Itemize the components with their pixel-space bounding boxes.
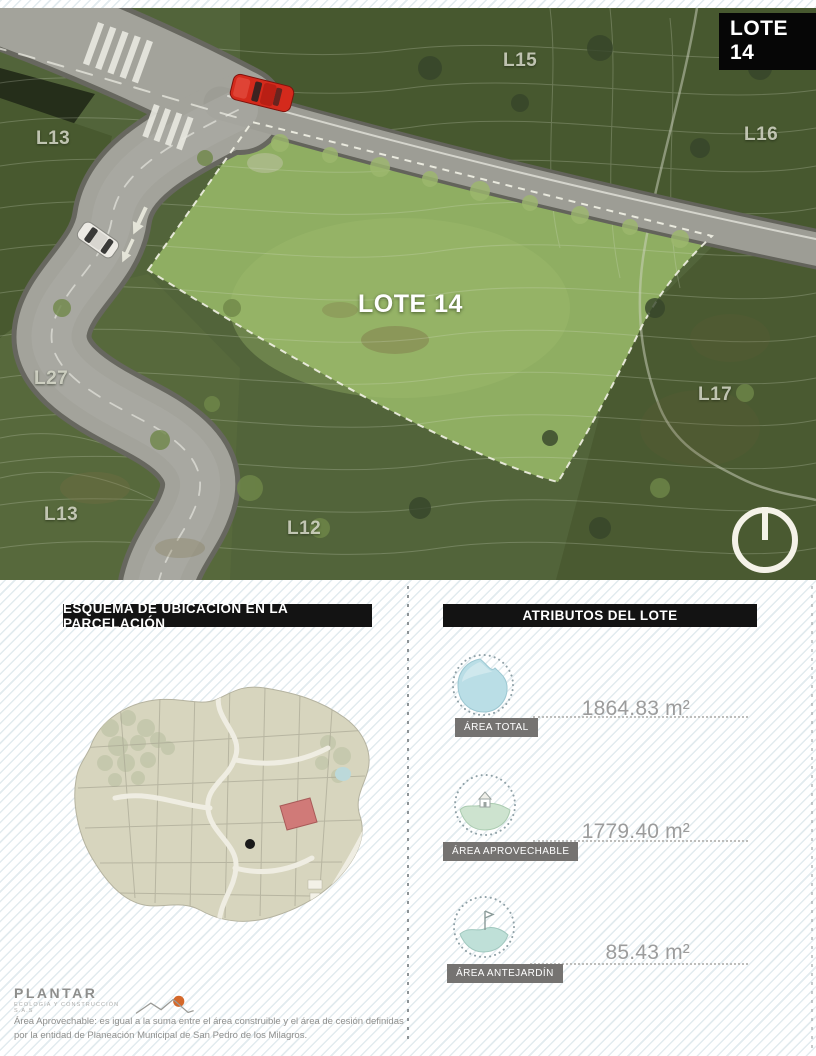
dotted-page-edge: [811, 586, 813, 1048]
area-antejardin-value: 85.43 m²: [560, 941, 690, 965]
map-label-l12: L12: [287, 518, 321, 540]
parcelacion-mini-map-graphic: [60, 648, 390, 948]
area-aprovechable-icon: [452, 772, 518, 838]
dotted-divider: [407, 586, 409, 1044]
map-label-l17: L17: [698, 384, 732, 406]
plantar-logo: PLANTAR ECOLOGÍA Y CONSTRUCCIÓN S.A.S: [14, 986, 194, 1014]
brand-subtitle: ECOLOGÍA Y CONSTRUCCIÓN S.A.S: [14, 1002, 132, 1014]
map-label-l16: L16: [744, 124, 778, 146]
area-total-icon: [450, 652, 516, 718]
area-antejardin-icon: [451, 894, 517, 960]
aerial-map: L13 L15 L16 L27 L17 L13 L12 LOTE 14: [0, 8, 816, 580]
atributos-section-header: ATRIBUTOS DEL LOTE: [443, 604, 757, 627]
mountain-sun-icon: [136, 993, 194, 1017]
area-aprovechable-value: 1779.40 m²: [560, 820, 690, 844]
parcelacion-mini-map: [60, 648, 390, 948]
esquema-section-header: ESQUEMA DE UBICACIÓN EN LA PARCELACIÓN: [63, 604, 372, 627]
map-label-l27: L27: [34, 368, 68, 390]
aprovechable-disclaimer: Área Aprovechable: es igual a la suma en…: [14, 1015, 416, 1043]
map-label-l13-nw: L13: [36, 128, 70, 150]
area-aprovechable-label: ÁREA APROVECHABLE: [443, 842, 578, 861]
map-label-l13-sw: L13: [44, 504, 78, 526]
area-total-label: ÁREA TOTAL: [455, 718, 538, 737]
area-antejardin-label: ÁREA ANTEJARDÍN: [447, 964, 563, 983]
area-total-value: 1864.83 m²: [560, 697, 690, 721]
brand-name: PLANTAR: [14, 986, 132, 1000]
house-glyph: [479, 792, 491, 807]
lot-sheet-page: L13 L15 L16 L27 L17 L13 L12 LOTE 14 LOTE…: [0, 0, 816, 1056]
lote14-map-label: LOTE 14: [358, 290, 463, 319]
lot-title-badge: LOTE 14: [719, 13, 816, 70]
location-marker-dot: [245, 839, 255, 849]
map-label-l15: L15: [503, 50, 537, 72]
